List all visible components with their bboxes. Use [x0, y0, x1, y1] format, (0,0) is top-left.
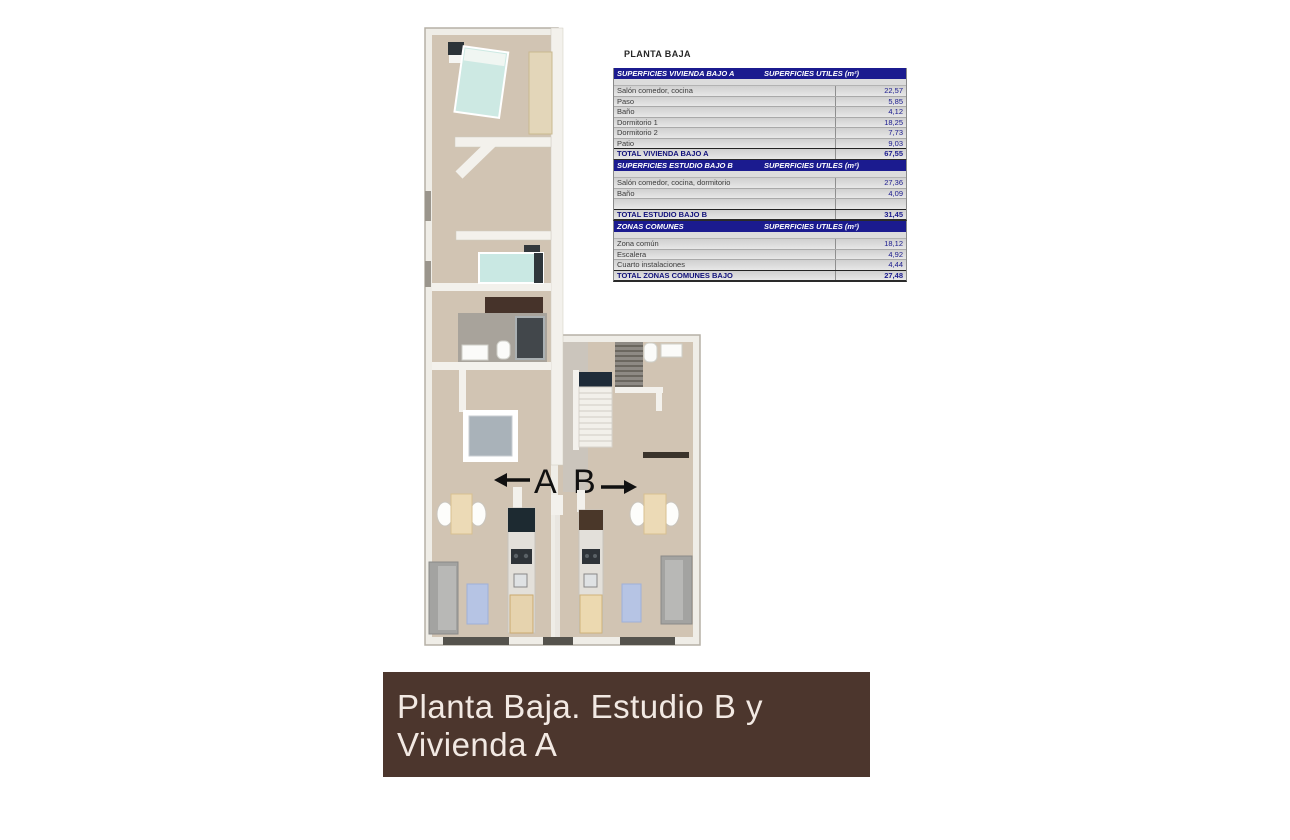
- row-label: Salón comedor, cocina: [614, 86, 835, 96]
- total-value: 67,55: [835, 149, 906, 159]
- table-spacer: [614, 79, 906, 86]
- sink-2: [661, 344, 682, 357]
- row-label: Salón comedor, cocina, dormitorio: [614, 178, 835, 188]
- row-value: 18,12: [835, 239, 906, 249]
- table-total-row: TOTAL ZONAS COMUNES BAJO 27,48: [614, 270, 906, 281]
- table-title: SUPERFICIES VIVIENDA BAJO A: [617, 69, 734, 78]
- wall-door-b: [577, 490, 585, 512]
- table-row: Salón comedor, cocina, dormitorio27,36: [614, 178, 906, 189]
- row-label: Escalera: [614, 250, 835, 260]
- total-label: TOTAL ZONAS COMUNES BAJO: [614, 271, 835, 281]
- bed-2: [479, 253, 543, 283]
- toilet-1: [497, 341, 510, 359]
- bed-1: [454, 46, 508, 118]
- row-value: [835, 199, 906, 209]
- wall-room1: [455, 137, 551, 147]
- wall-patio-stub: [459, 370, 466, 412]
- row-label: Dormitorio 2: [614, 128, 835, 138]
- total-label: TOTAL ESTUDIO BAJO B: [614, 210, 835, 220]
- table-row: Baño4,12: [614, 107, 906, 118]
- wall-unit-divider: [555, 515, 560, 637]
- row-label: Baño: [614, 189, 835, 199]
- row-value: 27,36: [835, 178, 906, 188]
- surface-table: SUPERFICIES ESTUDIO BAJO B SUPERFICIES U…: [613, 160, 907, 221]
- table-unit-header: SUPERFICIES UTILES (m²): [764, 221, 859, 232]
- caption-banner: Planta Baja. Estudio B y Vivienda A: [383, 672, 870, 777]
- table-row: Escalera4,92: [614, 250, 906, 261]
- table-spacer: [614, 232, 906, 239]
- window-left-2: [425, 261, 431, 287]
- table-row: [614, 199, 906, 209]
- shower: [516, 317, 544, 359]
- row-label: Patio: [614, 139, 835, 149]
- wall-room2: [456, 231, 551, 240]
- table-row: Patio9,03: [614, 139, 906, 149]
- table-header: ZONAS COMUNES SUPERFICIES UTILES (m²): [614, 221, 906, 232]
- table-row: Cuarto instalaciones4,44: [614, 260, 906, 270]
- bathroom-cabinet: [485, 297, 543, 313]
- row-value: 7,73: [835, 128, 906, 138]
- table-row: Paso5,85: [614, 97, 906, 108]
- row-label: Zona común: [614, 239, 835, 249]
- rug-b: [622, 584, 641, 622]
- toilet-2: [644, 343, 657, 362]
- bed-2-headboard: [534, 253, 543, 283]
- table-unit-header: SUPERFICIES UTILES (m²): [764, 160, 859, 171]
- row-label: Baño: [614, 107, 835, 117]
- row-value: 22,57: [835, 86, 906, 96]
- kitchen-island-b: [579, 510, 603, 633]
- wall-center: [551, 28, 563, 465]
- row-label: Dormitorio 1: [614, 118, 835, 128]
- patio-skylight: [463, 410, 518, 462]
- table-title: ZONAS COMUNES: [617, 222, 684, 231]
- table-header: SUPERFICIES VIVIENDA BAJO A SUPERFICIES …: [614, 68, 906, 79]
- page-title: PLANTA BAJA: [624, 49, 691, 59]
- nightstand-2: [524, 245, 540, 253]
- table-total-row: TOTAL ESTUDIO BAJO B 31,45: [614, 209, 906, 220]
- stair-landing: [579, 372, 612, 387]
- wall-stairs: [573, 370, 579, 450]
- row-label: Paso: [614, 97, 835, 107]
- table-unit-header: SUPERFICIES UTILES (m²): [764, 68, 859, 79]
- label-unit-a: A: [534, 463, 557, 501]
- staircase: [579, 387, 612, 447]
- kitchen-island-a: [508, 508, 535, 633]
- table-row: Zona común18,12: [614, 239, 906, 250]
- wall-aseo-v: [656, 387, 662, 411]
- total-value: 27,48: [835, 271, 906, 281]
- total-label: TOTAL VIVIENDA BAJO A: [614, 149, 835, 159]
- sink-1: [462, 345, 488, 360]
- shelf: [643, 452, 689, 458]
- table-row: Baño4,09: [614, 189, 906, 200]
- door-bottom-center: [543, 637, 573, 645]
- plan-sheet: A B: [0, 0, 1290, 840]
- window-bottom-b: [620, 637, 675, 645]
- row-value: 9,03: [835, 139, 906, 149]
- row-label: Cuarto instalaciones: [614, 260, 835, 270]
- wall-bedroom2: [432, 283, 551, 291]
- wall-bathroom: [432, 362, 551, 370]
- row-value: 5,85: [835, 97, 906, 107]
- wall-door-a: [513, 487, 522, 511]
- row-value: 4,92: [835, 250, 906, 260]
- table-row: Salón comedor, cocina22,57: [614, 86, 906, 97]
- surface-table: ZONAS COMUNES SUPERFICIES UTILES (m²) Zo…: [613, 221, 907, 282]
- stairs-upper: [615, 342, 643, 390]
- wardrobe: [529, 52, 552, 134]
- row-value: 4,12: [835, 107, 906, 117]
- total-value: 31,45: [835, 210, 906, 220]
- table-spacer: [614, 171, 906, 178]
- sofa-a: [429, 562, 458, 634]
- row-value: 4,09: [835, 189, 906, 199]
- nightstand-1: [448, 42, 464, 55]
- rug-a: [467, 584, 488, 624]
- table-total-row: TOTAL VIVIENDA BAJO A 67,55: [614, 148, 906, 159]
- table-row: Dormitorio 118,25: [614, 118, 906, 129]
- table-header: SUPERFICIES ESTUDIO BAJO B SUPERFICIES U…: [614, 160, 906, 171]
- row-label: [614, 199, 835, 209]
- sofa-b: [661, 556, 692, 624]
- table-row: Dormitorio 27,73: [614, 128, 906, 139]
- window-bottom-a: [443, 637, 509, 645]
- surface-table: SUPERFICIES VIVIENDA BAJO A SUPERFICIES …: [613, 68, 907, 161]
- table-title: SUPERFICIES ESTUDIO BAJO B: [617, 161, 733, 170]
- row-value: 18,25: [835, 118, 906, 128]
- window-left-1: [425, 191, 431, 221]
- wall-aseo-h: [615, 387, 663, 393]
- row-value: 4,44: [835, 260, 906, 270]
